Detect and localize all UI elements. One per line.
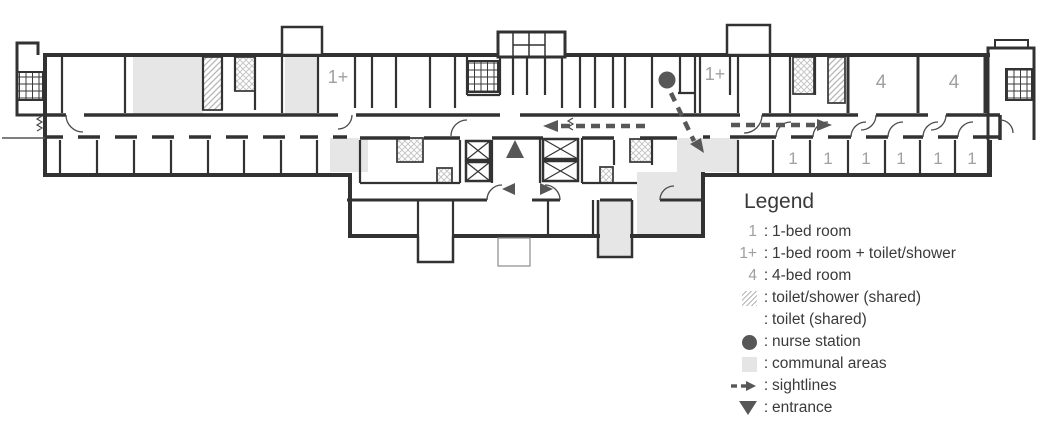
wall-segment [678,57,695,113]
wing-partitions [418,200,593,236]
legend-row-sightlines: : sightlines [726,375,1051,397]
legend-symbol-cell [726,357,760,372]
room-label-1bed: 1 [788,149,797,168]
legend-row-1bed-plus: 1+ : 1-bed room + toilet/shower [726,243,1051,265]
door-arc [1000,120,1013,133]
sightline-dashed-diagonal [671,93,694,141]
legend-label: toilet/shower (shared) [772,289,921,307]
toilet-shared [600,167,613,183]
wall-segment [513,57,652,108]
communal-area [133,57,203,114]
legend-colon: : [760,333,772,351]
sightline-arrowhead-left [543,120,558,132]
legend-row-nurse-station: : nurse station [726,331,1051,353]
door-arc [338,115,352,129]
legend-symbol-1bed-plus: 1+ [726,245,760,263]
legend-row-entrance: : entrance [726,397,1051,419]
room-label-4bed-a: 4 [876,72,887,93]
toilet-shared [630,139,652,162]
legend-symbol-1bed: 1 [726,223,760,241]
toilet-shower-shared [828,57,845,103]
legend-symbol-cell [726,380,760,392]
sightline-arrowhead-right [817,119,832,131]
legend-label: communal areas [772,355,887,373]
communal-area [330,138,368,172]
toilet-shared [437,168,452,183]
wall-segment [848,55,985,113]
legend-label: nurse station [772,333,861,351]
diagonal-hatch-icon [742,291,757,306]
room-label-1bed: 1 [933,149,942,168]
legend-row-1bed: 1 : 1-bed room [726,221,1051,243]
legend-colon: : [760,311,772,329]
legend-colon: : [760,355,772,373]
legend-symbol-cell [726,313,760,328]
legend-row-toilet: : toilet (shared) [726,309,1051,331]
corridor-walls [45,115,1000,140]
nurse-station-icon [742,335,757,350]
toilet-shower-shared [203,57,222,110]
door-arc [66,115,83,132]
room-label-4bed-b: 4 [949,72,960,93]
canopy-outline [498,238,530,266]
elevators [466,139,578,181]
wall-segment [355,57,455,108]
toilet-shared [793,57,814,94]
legend-label: sightlines [772,377,837,395]
legend-symbol-cell [726,401,760,415]
legend-label: 1-bed room [772,223,851,241]
sightline-arrow-icon [729,380,757,392]
door-arc [451,120,467,136]
communal-area [677,138,739,172]
legend-row-4bed: 4 : 4-bed room [726,265,1051,287]
legend-colon: : [760,289,772,307]
legend-colon: : [760,223,772,241]
door-arc [888,122,903,137]
legend-colon: : [760,267,772,285]
door-squiggle [37,116,42,131]
sightline-arrowhead-left-small [502,183,515,195]
room-label-1plus-left: 1+ [328,67,349,87]
legend-colon: : [760,399,772,417]
staircase-left [17,72,43,100]
legend-title: Legend [726,190,1051,214]
legend-label: entrance [772,399,832,417]
legend-colon: : [760,377,772,395]
room-label-1bed: 1 [823,149,832,168]
room-label-1bed: 1 [896,149,905,168]
legend-label: 4-bed room [772,267,851,285]
entrance-marker [506,140,524,158]
top-block [282,27,322,55]
room-label-1bed: 1 [967,149,976,168]
cross-hatch-icon [742,313,757,328]
floor-plan-page: 1+ 1+ 4 4 1 1 1 1 1 1 Legend 1 : 1-bed r… [0,0,1053,445]
communal-area [598,200,632,257]
legend-colon: : [760,245,772,263]
top-block [727,25,770,55]
legend-symbol-cell [726,291,760,306]
room-label-1plus-right: 1+ [705,64,726,84]
staircase-right [1006,69,1032,100]
toilet-shared [235,57,255,91]
nurse-station-marker [659,72,676,89]
toilet-shared [397,138,423,162]
communal-area [285,57,318,114]
legend-row-toilet-shower: : toilet/shower (shared) [726,287,1051,309]
wing-lower-block [418,236,453,262]
communal-area [637,172,703,235]
legend-symbol-cell [726,335,760,350]
communal-area-icon [742,357,757,372]
legend-row-communal: : communal areas [726,353,1051,375]
entrance-triangle-icon [739,401,757,415]
room-label-1bed: 1 [861,149,870,168]
legend-label: 1-bed room + toilet/shower [772,245,956,263]
wall-segment [60,140,317,173]
staircase-center [468,61,498,92]
legend: Legend 1 : 1-bed room 1+ : 1-bed room + … [726,190,1051,419]
door-arc [958,122,973,137]
legend-symbol-4bed: 4 [726,267,760,285]
legend-label: toilet (shared) [772,311,867,329]
door-arc [487,185,502,200]
